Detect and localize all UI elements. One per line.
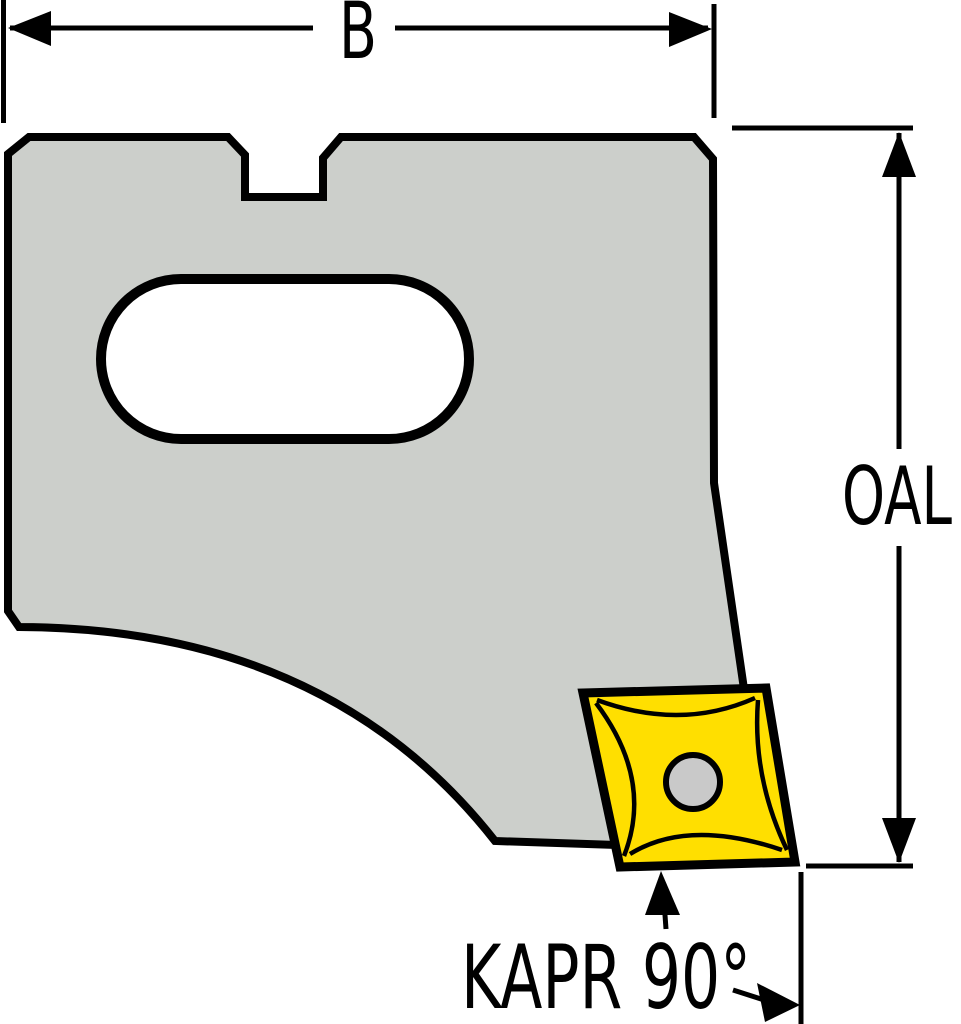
oal-arrowhead-down-icon (882, 818, 916, 863)
drawing-root: B OAL KAPR 90° (4, 0, 953, 1024)
mounting-slot (101, 279, 469, 439)
oal-dimension-label: OAL (842, 450, 952, 543)
insert-screw-hole (666, 755, 720, 809)
kapr-arrowhead-up-icon (645, 871, 680, 915)
b-dimension-label: B (339, 0, 377, 77)
oal-arrowhead-up-icon (882, 132, 916, 177)
kapr-arrowhead-diagonal-icon (757, 983, 800, 1022)
tool-drawing-page: B OAL KAPR 90° (0, 0, 961, 1024)
kapr-angle-label: KAPR 90° (461, 926, 751, 1024)
technical-drawing: B OAL KAPR 90° (0, 0, 961, 1024)
b-arrowhead-left-icon (8, 11, 51, 46)
cutting-insert (583, 688, 795, 867)
b-arrowhead-right-icon (669, 12, 712, 47)
